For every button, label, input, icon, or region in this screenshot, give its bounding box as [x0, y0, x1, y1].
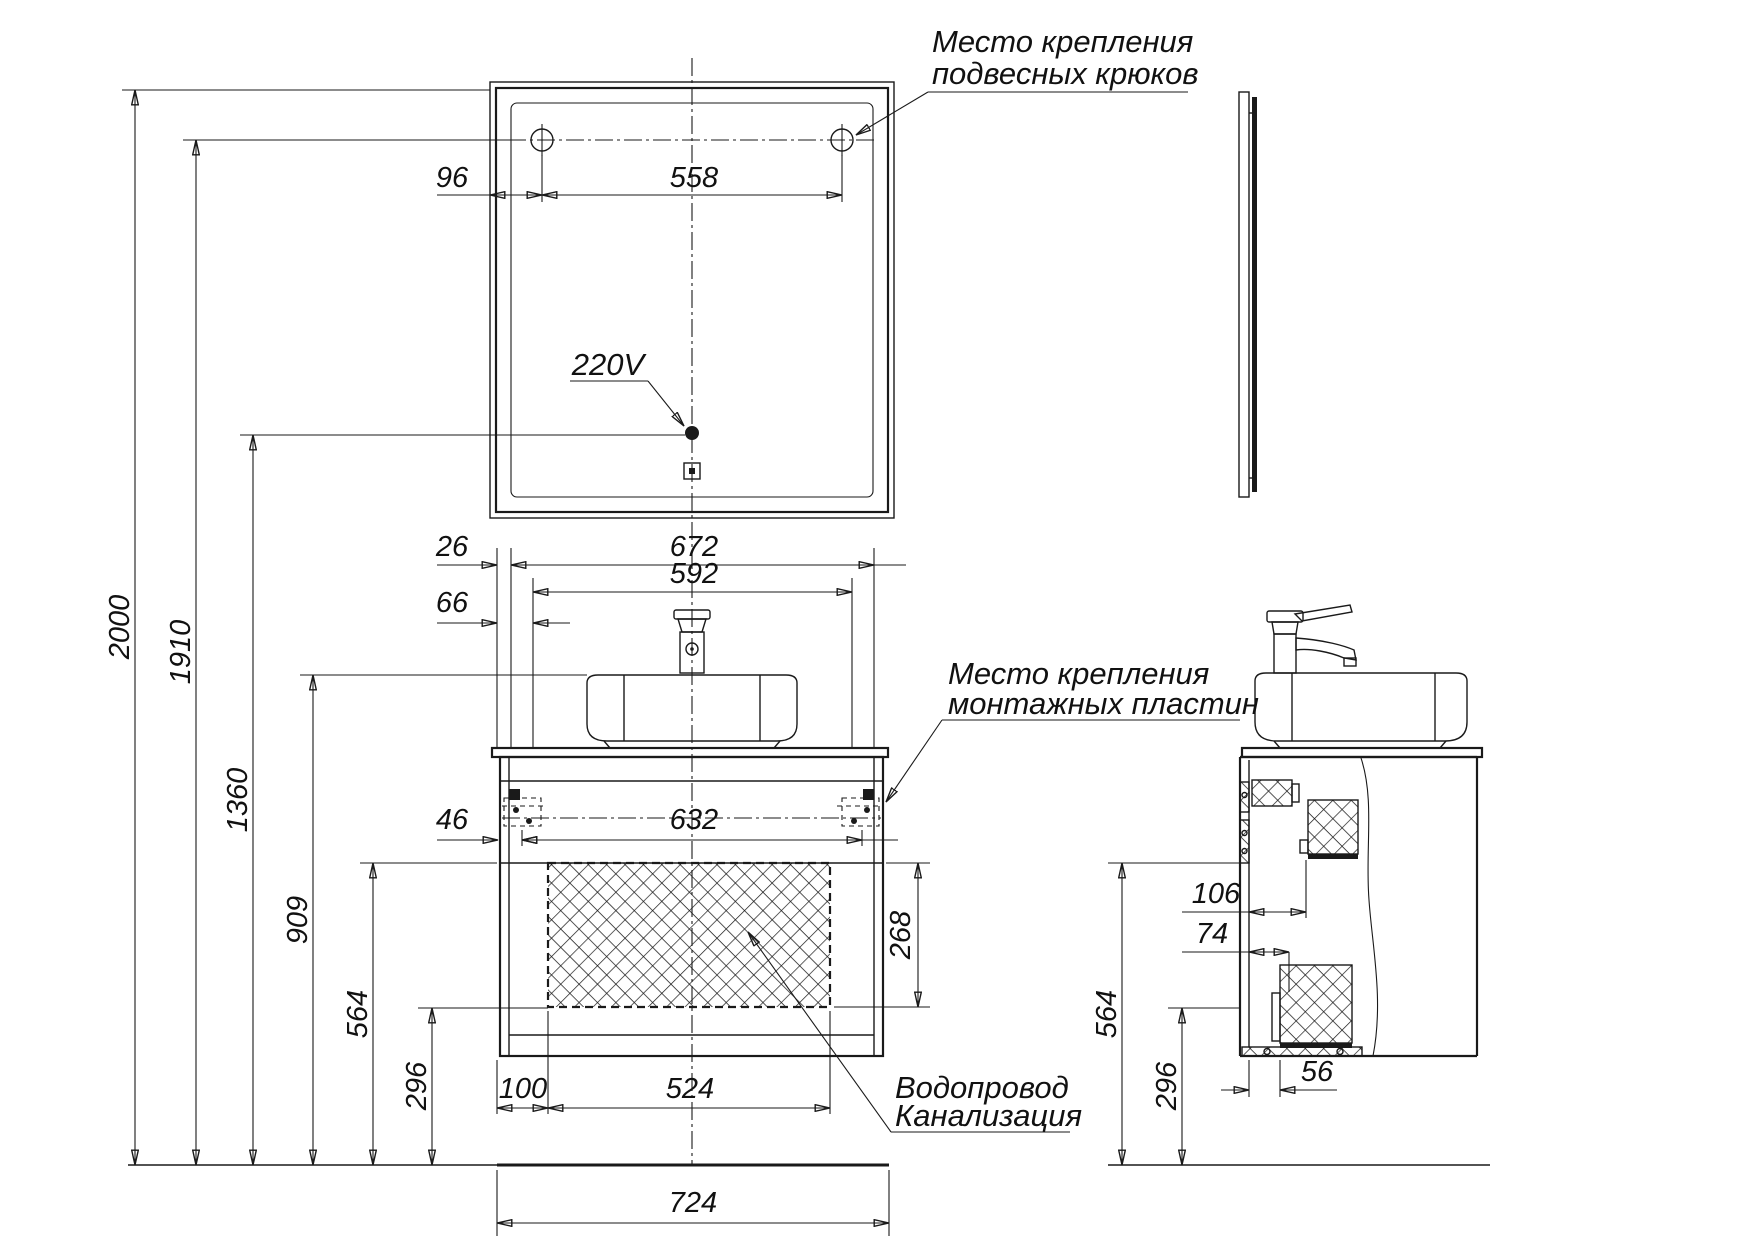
dim-side-564: 564 — [1091, 990, 1123, 1038]
dim-1910: 1910 — [165, 620, 197, 685]
plates-callout: Место крепления монтажных пластин — [886, 656, 1259, 802]
dim-side-296: 296 — [1151, 1061, 1183, 1111]
dim-1360: 1360 — [222, 768, 254, 833]
cabinet-side — [1240, 748, 1482, 1056]
dim-96: 96 — [436, 162, 469, 194]
section-break-curve — [1361, 758, 1378, 1056]
dim-100: 100 — [499, 1073, 547, 1105]
dim-total-width: 724 — [497, 1170, 889, 1236]
dim-26: 26 — [435, 531, 469, 563]
dim-66: 66 — [436, 587, 469, 619]
dim-296: 296 — [401, 1061, 433, 1111]
dim-2000: 2000 — [104, 595, 136, 661]
power-callout: 220V — [570, 347, 684, 426]
plates-label-line2: монтажных пластин — [948, 686, 1259, 721]
dim-74: 74 — [1196, 918, 1228, 950]
dim-268: 268 — [885, 911, 917, 960]
vanity-installation-drawing: 96 558 2000 1910 1360 909 564 296 — [0, 0, 1754, 1240]
plumbing-label-line2: Канализация — [895, 1098, 1082, 1133]
side-view — [1239, 92, 1482, 1056]
dim-524: 524 — [666, 1073, 714, 1105]
dim-46: 46 — [436, 804, 469, 836]
power-outlet-point — [685, 426, 699, 440]
dim-countertop: 26 672 592 66 — [435, 531, 906, 748]
dim-106: 106 — [1192, 878, 1241, 910]
power-label: 220V — [571, 347, 648, 382]
top-rail-section — [1252, 780, 1299, 806]
basin-side — [1255, 673, 1467, 748]
dim-558: 558 — [670, 162, 718, 194]
plumbing-hatch-zone — [548, 863, 830, 1007]
dim-56: 56 — [1301, 1056, 1334, 1088]
dim-plates: 46 632 — [436, 804, 898, 846]
hooks-callout: Место крепления подвесных крюков — [856, 24, 1199, 135]
dim-632: 632 — [670, 804, 718, 836]
technical-drawing-sheet: 96 558 2000 1910 1360 909 564 296 — [0, 0, 1754, 1240]
faucet-side — [1267, 605, 1356, 673]
hooks-label-line2: подвесных крюков — [932, 56, 1199, 91]
lower-rail-section — [1272, 965, 1352, 1048]
mirror-side — [1239, 92, 1257, 497]
dim-564: 564 — [342, 990, 374, 1038]
dim-592: 592 — [670, 558, 718, 590]
dim-909: 909 — [282, 896, 314, 944]
front-view — [490, 58, 894, 1165]
hooks-label-line1: Место крепления — [932, 24, 1193, 59]
dim-724: 724 — [669, 1187, 717, 1219]
hanging-rail-section — [1300, 800, 1358, 859]
